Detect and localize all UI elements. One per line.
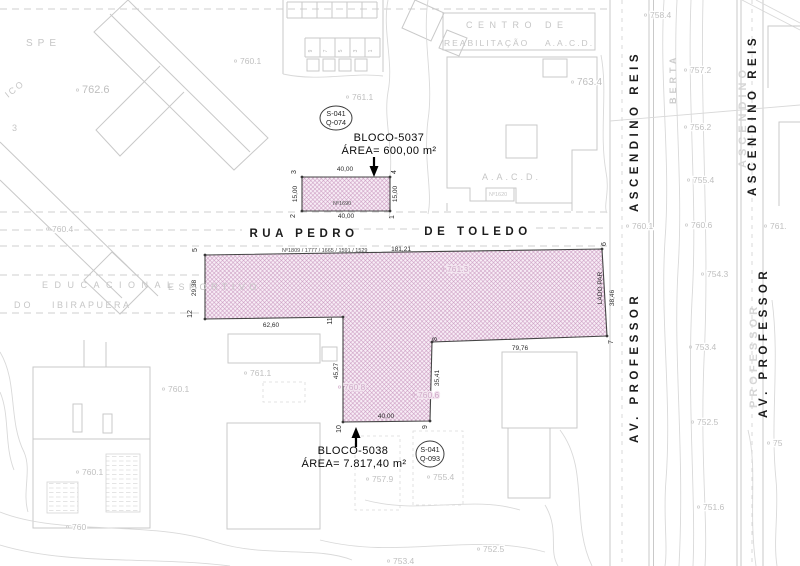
bloco5037-dimension-label: 40,00 xyxy=(338,213,355,220)
bloco5038-title: BLOCO-5038 xyxy=(318,445,389,457)
side-label-lado-par: LADO PAR xyxy=(597,272,604,305)
elevation-label: 752.5 xyxy=(697,417,719,427)
small-lots xyxy=(283,0,383,74)
sector-plate-q093-line1: S-041 xyxy=(420,445,439,454)
bloco5038-vertex-point xyxy=(204,254,207,257)
elevation-marker xyxy=(684,126,686,128)
elevation-marker xyxy=(162,388,164,390)
bloco5037-vertex-number: 3 xyxy=(291,170,298,174)
bloco5038-dimension-label: 45,27 xyxy=(333,362,340,379)
street-numbers-5038: Nº1809 / 1777 / 1665 / 1591 / 1529 xyxy=(282,247,368,254)
street-label-ascendino-reis-1: ASCENDINO REIS xyxy=(629,50,641,212)
elevation-label: 760.6 xyxy=(418,390,440,400)
bloco5037-pointer-arrowhead xyxy=(370,166,379,177)
bloco5038-vertex-point xyxy=(204,318,207,321)
elevation-label: 758.4 xyxy=(650,10,672,20)
bloco5038-vertex-point xyxy=(342,421,345,424)
elevation-marker xyxy=(234,60,236,62)
elevation-marker xyxy=(764,225,766,227)
sector-plate-q074-line2: Q-074 xyxy=(326,118,346,127)
elevation-label: 752.5 xyxy=(483,544,505,554)
elevation-label: 760.1 xyxy=(168,384,190,394)
bloco5038-vertex-number: 11 xyxy=(327,317,334,324)
elevation-label: 751.6 xyxy=(703,502,725,512)
bloco5038-vertex-number: 12 xyxy=(187,310,194,318)
lot-number: 9 xyxy=(308,49,314,52)
area-label: 3 xyxy=(12,123,17,133)
bloco5038-dimension-label: 79,76 xyxy=(512,345,529,352)
house-number-5037: Nº1690 xyxy=(333,200,351,207)
bloco5038-vertex-number: 8 xyxy=(432,337,439,341)
bloco5037-vertex-number: 1 xyxy=(389,215,396,219)
elevation-marker xyxy=(767,442,769,444)
hatched-structure xyxy=(106,454,140,512)
elevation-marker xyxy=(427,476,429,478)
elevation-label: 760.1 xyxy=(240,56,262,66)
elevation-marker xyxy=(701,273,703,275)
dashed-lot-lines xyxy=(622,0,752,566)
bloco5038-dimension-label: 40,00 xyxy=(378,413,395,420)
bloco5037-vertex-point xyxy=(301,210,304,213)
street-label-berta: BERTA xyxy=(668,54,678,104)
bloco5037-vertex-point xyxy=(301,176,304,179)
parcel-bloco5038 xyxy=(205,249,607,422)
area-label: CENTRO DE xyxy=(466,20,569,30)
parcels-layer xyxy=(205,177,607,422)
street-label-rua-pedro: RUA PEDRO xyxy=(249,228,358,240)
area-label: EDUCACIONAL xyxy=(42,280,179,290)
elevation-marker xyxy=(684,69,686,71)
lot-number: 5 xyxy=(338,49,344,52)
area-label: DO xyxy=(14,300,34,310)
area-label: A.A.C.D. xyxy=(545,38,594,48)
elevation-label: 756.2 xyxy=(690,122,712,132)
sector-plate-q093-line2: Q-093 xyxy=(420,454,440,463)
lot-number: 1 xyxy=(368,49,374,52)
right-edge-buildings xyxy=(768,26,800,206)
street-names: RUA PEDRO DE TOLEDO ASCENDINO REIS AV. P… xyxy=(249,34,770,443)
area-label: IBIRAPUERA xyxy=(52,300,132,310)
elevation-label: 754.3 xyxy=(707,269,729,279)
bloco5037-dimension-label: 40,00 xyxy=(337,166,354,173)
elevation-label: 760.8 xyxy=(344,382,366,392)
sector-plate-q074-line1: S-041 xyxy=(326,109,345,118)
elevation-marker xyxy=(626,225,628,227)
elevation-label: 75 xyxy=(773,438,783,448)
elevation-marker xyxy=(387,560,389,562)
street-label-av-professor-1: AV. PROFESSOR xyxy=(629,292,641,443)
elevation-marker xyxy=(477,548,479,550)
area-label: A.A.C.D. xyxy=(482,172,541,182)
elevation-marker xyxy=(346,96,348,98)
elevation-marker xyxy=(76,471,78,473)
elevation-label: 761.1 xyxy=(250,368,272,378)
elevation-label: 762.6 xyxy=(82,84,110,96)
bloco5038-vertex-point xyxy=(606,335,609,338)
elevation-label: 760 xyxy=(72,522,86,532)
bloco5038-vertex-point xyxy=(429,420,432,423)
street-label-av-professor-2: AV. PROFESSOR xyxy=(758,267,770,418)
area-label: SPE xyxy=(26,38,61,49)
elevation-marker xyxy=(687,179,689,181)
elevation-label: 763.4 xyxy=(577,77,602,88)
elevation-label: 760.6 xyxy=(691,220,713,230)
elevation-marker xyxy=(571,81,573,83)
bloco5038-vertex-number: 6 xyxy=(601,242,608,246)
area-label: ICO xyxy=(3,78,27,99)
bloco5038-vertex-point xyxy=(342,316,345,319)
bloco5037-vertex-number: 2 xyxy=(290,214,297,218)
elevation-label: 753.4 xyxy=(695,342,717,352)
bloco5038-dimension-label: 35,41 xyxy=(434,369,441,386)
elevation-label: 760.1 xyxy=(632,221,654,231)
bloco5038-vertex-number: 7 xyxy=(608,340,615,344)
bloco5038-dimension-label: 181,21 xyxy=(391,246,411,253)
bloco5037-vertex-point xyxy=(389,176,392,179)
elevation-label: 757.9 xyxy=(372,474,394,484)
elevation-marker xyxy=(685,224,687,226)
elevation-label: 757.2 xyxy=(690,65,712,75)
elevation-marker xyxy=(644,14,646,16)
elevation-label: 761. xyxy=(770,221,787,231)
bloco5038-vertex-number: 9 xyxy=(422,425,429,429)
lot-number: 3 xyxy=(353,49,359,52)
elevation-label: 761.3 xyxy=(447,264,469,274)
elevation-marker xyxy=(338,386,340,388)
area-label: Nº1620 xyxy=(489,191,507,198)
bloco5038-area: ÁREA= 7.817,40 m² xyxy=(302,457,407,470)
bloco5038-vertex-point xyxy=(601,248,604,251)
elevation-label: 760.4 xyxy=(52,224,74,234)
street-label-ascendino-reis-2: ASCENDINO REIS xyxy=(747,34,759,196)
street-label-de-toledo: DE TOLEDO xyxy=(424,226,531,238)
elevation-label: 760.1 xyxy=(82,467,104,477)
elevation-marker xyxy=(697,506,699,508)
area-label: ESPORTIVO xyxy=(168,282,261,292)
elevation-marker xyxy=(46,228,48,230)
bloco5037-area: ÁREA= 600,00 m² xyxy=(342,144,437,157)
elevation-marker xyxy=(76,89,78,91)
bloco5038-dimension-label: 62,60 xyxy=(263,322,280,329)
bloco5038-vertex-number: 5 xyxy=(192,248,199,252)
elevation-marker xyxy=(366,478,368,480)
hatched-structure xyxy=(47,482,78,513)
bloco5037-vertex-point xyxy=(389,210,392,213)
bloco5037-dimension-label: 15,00 xyxy=(392,185,399,202)
elevation-label: 755.4 xyxy=(433,472,455,482)
bloco5037-vertex-number: 4 xyxy=(391,170,398,174)
elevation-marker xyxy=(244,372,246,374)
bloco5038-pointer-arrowhead xyxy=(352,427,361,438)
elevation-label: 753.4 xyxy=(393,556,415,566)
bloco5037-dimension-label: 15,00 xyxy=(292,185,299,202)
bloco5038-vertex-number: 10 xyxy=(336,425,343,433)
area-label: REABILITAÇÃO xyxy=(444,38,529,48)
bloco5038-dimension-label: 29,38 xyxy=(191,279,198,296)
bloco5037-title: BLOCO-5037 xyxy=(354,132,425,144)
lot-number: 7 xyxy=(323,49,329,52)
elevation-label: 755.4 xyxy=(693,175,715,185)
bloco5038-dimension-label: 38,46 xyxy=(609,289,616,306)
elevation-label: 761.1 xyxy=(352,92,374,102)
map-canvas: 760.1761.1762.6763.4758.4757.2756.2755.4… xyxy=(0,0,800,566)
cadastral-map: 760.1761.1762.6763.4758.4757.2756.2755.4… xyxy=(0,0,800,566)
